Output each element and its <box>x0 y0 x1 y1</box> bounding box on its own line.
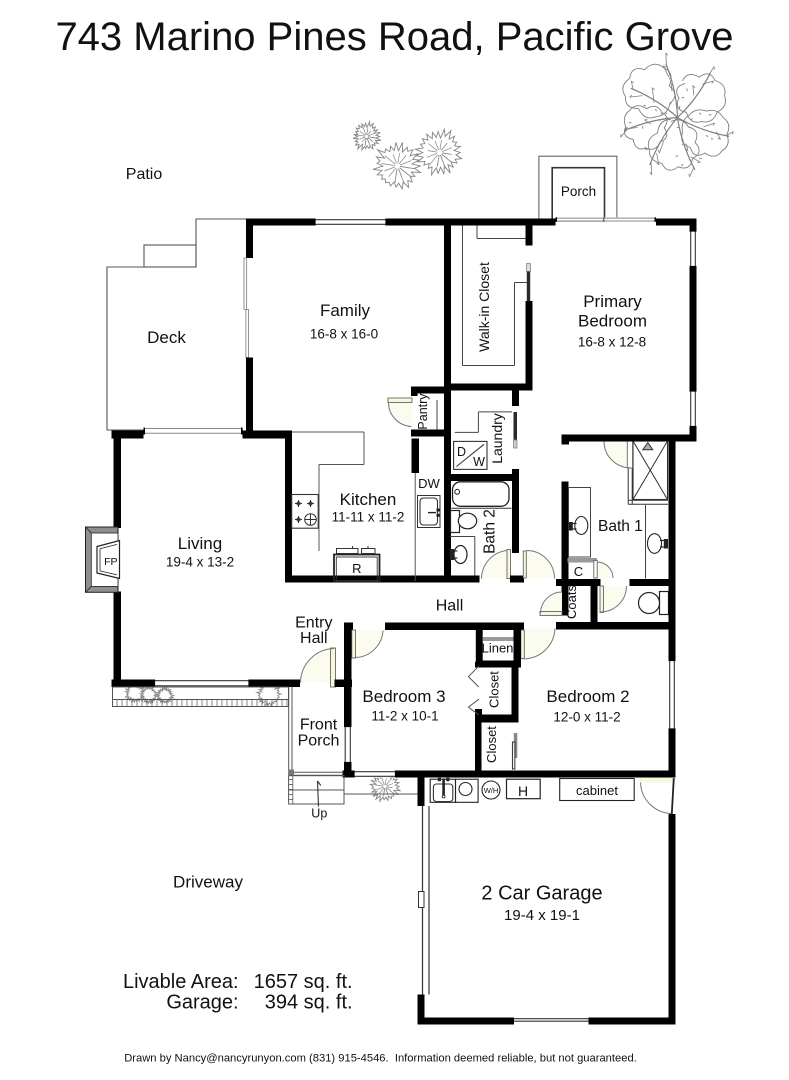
svg-text:Primary: Primary <box>583 292 642 311</box>
svg-text:FP: FP <box>104 556 117 568</box>
svg-text:19-4 x 13-2: 19-4 x 13-2 <box>166 555 234 570</box>
svg-text:Hall: Hall <box>300 630 328 647</box>
svg-text:W: W <box>473 455 485 469</box>
svg-text:Porch: Porch <box>298 733 340 750</box>
svg-text:Coats: Coats <box>564 585 579 619</box>
svg-text:Bedroom 2: Bedroom 2 <box>546 687 629 706</box>
svg-text:DW: DW <box>418 476 440 491</box>
svg-text:12-0 x 11-2: 12-0 x 11-2 <box>553 710 620 725</box>
svg-text:Kitchen: Kitchen <box>340 490 397 509</box>
svg-text:743 Marino Pines Road, Pacific: 743 Marino Pines Road, Pacific Grove <box>55 15 733 59</box>
svg-text:cabinet: cabinet <box>576 783 618 798</box>
svg-text:Bedroom: Bedroom <box>578 312 647 331</box>
svg-text:1657 sq. ft.: 1657 sq. ft. <box>254 971 353 993</box>
svg-text:W/H: W/H <box>484 786 499 795</box>
svg-text:Laundry: Laundry <box>489 413 505 464</box>
svg-text:Living: Living <box>178 534 222 553</box>
svg-text:Linen: Linen <box>482 641 514 656</box>
svg-text:Patio: Patio <box>126 166 163 183</box>
svg-text:Up: Up <box>311 807 327 821</box>
svg-text:16-8 x 16-0: 16-8 x 16-0 <box>310 327 378 342</box>
svg-text:19-4 x 19-1: 19-4 x 19-1 <box>504 907 580 924</box>
svg-text:Garage:: Garage: <box>166 991 238 1013</box>
svg-text:Driveway: Driveway <box>173 873 243 892</box>
svg-text:D: D <box>457 445 466 459</box>
svg-text:Front: Front <box>300 717 338 734</box>
svg-text:Hall: Hall <box>436 598 464 615</box>
svg-text:Bath 2: Bath 2 <box>482 509 499 554</box>
svg-text:11-2 x 10-1: 11-2 x 10-1 <box>371 709 438 724</box>
svg-text:Livable Area:: Livable Area: <box>123 971 239 993</box>
svg-text:Pantry: Pantry <box>416 393 430 430</box>
svg-text:Entry: Entry <box>295 615 332 632</box>
svg-text:Drawn by Nancy@nancyrunyon.com: Drawn by Nancy@nancyrunyon.com (831) 915… <box>124 1053 637 1065</box>
svg-text:Bedroom 3: Bedroom 3 <box>362 687 445 706</box>
svg-text:R: R <box>352 561 361 576</box>
svg-text:Bath 1: Bath 1 <box>598 518 643 535</box>
svg-text:Porch: Porch <box>561 184 596 199</box>
svg-text:Walk-in Closet: Walk-in Closet <box>476 262 492 352</box>
svg-text:394 sq. ft.: 394 sq. ft. <box>265 991 353 1013</box>
svg-text:Deck: Deck <box>147 328 186 347</box>
svg-text:Closet: Closet <box>484 726 499 763</box>
svg-text:11-11 x 11-2: 11-11 x 11-2 <box>332 510 405 525</box>
svg-text:H: H <box>518 783 528 799</box>
svg-text:2 Car Garage: 2 Car Garage <box>481 883 602 905</box>
svg-text:C: C <box>574 564 583 579</box>
svg-text:Family: Family <box>320 301 371 320</box>
svg-text:Closet: Closet <box>487 671 502 708</box>
svg-text:16-8 x 12-8: 16-8 x 12-8 <box>578 335 646 350</box>
